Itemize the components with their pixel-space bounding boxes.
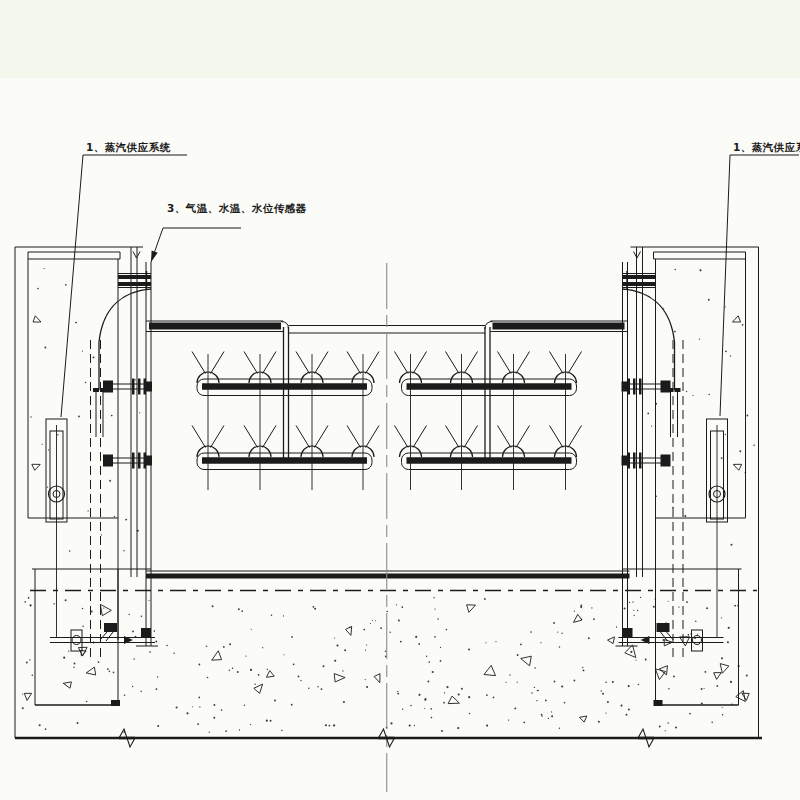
aggregate-dot — [564, 702, 566, 704]
pipe-tee — [146, 456, 152, 466]
aggregate-triangle — [680, 637, 690, 646]
aggregate-dot — [640, 597, 641, 598]
aggregate-dot — [523, 721, 525, 723]
aggregate-dot — [514, 707, 516, 709]
nozzle-spray-line — [296, 426, 310, 448]
aggregate-dot — [753, 444, 755, 446]
aggregate-dot — [250, 724, 251, 725]
aggregate-dot — [86, 701, 88, 703]
aggregate-dot — [26, 662, 28, 664]
aggregate-dot — [537, 690, 538, 691]
aggregate-dot — [432, 671, 434, 673]
aggregate-dot — [637, 610, 638, 611]
aggregate-dot — [624, 607, 626, 609]
aggregate-dot — [155, 688, 157, 690]
aggregate-dot — [722, 707, 723, 708]
aggregate-dot — [688, 634, 690, 636]
pipe-tee — [146, 382, 152, 392]
aggregate-triangle — [24, 693, 31, 700]
aggregate-dot — [133, 658, 135, 660]
aggregate-dot — [684, 515, 686, 517]
nozzle-spray-line — [366, 426, 380, 448]
aggregate-dot — [673, 675, 675, 677]
aggregate-dot — [574, 611, 575, 612]
aggregate-dot — [109, 480, 111, 482]
aggregate-dot — [517, 654, 519, 656]
page-margin-band — [0, 0, 800, 78]
callout-leader-line — [61, 155, 83, 417]
aggregate-dot — [668, 601, 669, 602]
manifold-elbow — [281, 322, 289, 330]
aggregate-dot — [591, 607, 592, 608]
aggregate-triangle — [659, 666, 667, 675]
aggregate-dot — [725, 434, 726, 435]
aggregate-dot — [534, 687, 535, 688]
leader-arrowhead-icon — [151, 251, 158, 262]
pipe-elbow — [104, 623, 117, 632]
aggregate-dot — [506, 682, 507, 683]
aggregate-dot — [446, 686, 448, 688]
aggregate-triangle — [574, 614, 582, 622]
aggregate-dot — [344, 649, 346, 651]
aggregate-dot — [486, 725, 488, 727]
aggregate-dot — [300, 680, 301, 681]
right-pier-and-gate-half — [387, 247, 759, 738]
aggregate-dot — [574, 680, 576, 682]
aggregate-dot — [325, 724, 327, 726]
aggregate-dot — [580, 605, 582, 607]
aggregate-triangle — [720, 664, 729, 674]
aggregate-dot — [414, 725, 415, 726]
callout-labels: 1、蒸汽供应系统 3、气温、水温、水位传感器 1、蒸汽供应系统 — [86, 141, 800, 214]
aggregate-dot — [283, 654, 284, 655]
aggregate-dot — [166, 645, 168, 647]
aggregate-dot — [206, 645, 208, 647]
aggregate-dot — [37, 288, 39, 290]
aggregate-dot — [493, 697, 495, 699]
aggregate-dot — [548, 718, 549, 719]
pipe-cap — [93, 388, 99, 392]
aggregate-dot — [431, 717, 433, 719]
aggregate-dot — [697, 633, 698, 634]
aggregate-dot — [53, 603, 55, 605]
aggregate-dot — [270, 720, 272, 722]
aggregate-dot — [232, 667, 234, 669]
aggregate-dot — [725, 350, 727, 352]
aggregate-dot — [692, 395, 693, 396]
aggregate-dot — [321, 688, 323, 690]
aggregate-dot — [385, 651, 386, 652]
aggregate-dot — [469, 713, 471, 715]
aggregate-dot — [605, 681, 607, 683]
aggregate-triangle — [86, 667, 96, 675]
aggregate-dot — [328, 725, 330, 727]
aggregate-dot — [721, 617, 722, 618]
aggregate-dot — [212, 605, 214, 607]
aggregate-dot — [75, 322, 77, 324]
aggregate-dot — [334, 637, 335, 638]
aggregate-dot — [82, 608, 84, 610]
aggregate-triangle — [32, 464, 40, 470]
aggregate-dot — [561, 633, 562, 634]
aggregate-dot — [365, 649, 366, 650]
aggregate-dot — [244, 704, 245, 705]
aggregate-dot — [39, 724, 41, 726]
aggregate-dot — [149, 651, 151, 653]
aggregate-triangle — [63, 682, 71, 688]
aggregate-dot — [728, 627, 730, 629]
aggregate-dot — [317, 686, 318, 687]
aggregate-dot — [616, 626, 617, 627]
header-pipe — [202, 383, 367, 390]
aggregate-dot — [397, 693, 399, 695]
pipe-flange — [132, 453, 135, 469]
aggregate-dot — [366, 644, 367, 645]
aggregate-dot — [87, 510, 88, 511]
nozzle-spray-line — [315, 426, 329, 448]
aggregate-dot — [389, 632, 391, 634]
aggregate-dot — [372, 620, 373, 621]
aggregate-dot — [271, 615, 273, 617]
aggregate-dot — [213, 717, 215, 719]
aggregate-dot — [44, 347, 46, 349]
aggregate-dot — [22, 694, 23, 695]
aggregate-triangle — [346, 626, 352, 635]
aggregate-dot — [509, 674, 510, 675]
aggregate-dot — [113, 671, 115, 673]
aggregate-dot — [363, 629, 365, 631]
aggregate-dot — [157, 676, 158, 677]
nozzle-spray-line — [315, 352, 329, 374]
aggregate-dot — [704, 671, 706, 673]
aggregate-dot — [458, 693, 460, 695]
aggregate-dot — [291, 636, 293, 638]
aggregate-dot — [29, 659, 30, 660]
aggregate-dot — [380, 627, 382, 629]
aggregate-triangle — [254, 684, 263, 693]
aggregate-dot — [65, 599, 67, 601]
aggregate-dot — [626, 714, 628, 716]
aggregate-dot — [22, 707, 24, 709]
aggregate-dot — [540, 642, 541, 643]
aggregate-dot — [541, 715, 543, 717]
aggregate-dot — [468, 649, 470, 651]
aggregate-triangle — [580, 716, 587, 722]
aggregate-dot — [607, 701, 609, 703]
aggregate-dot — [433, 597, 434, 598]
aggregate-dot — [593, 618, 595, 620]
aggregate-dot — [314, 608, 316, 610]
aggregate-dot — [199, 706, 200, 707]
aggregate-dot — [659, 726, 661, 728]
aggregate-dot — [123, 550, 124, 551]
aggregate-dot — [390, 722, 392, 724]
nozzle-spray-line — [347, 426, 361, 448]
aggregate-dot — [254, 684, 255, 685]
aggregate-dot — [686, 391, 687, 392]
aggregate-dot — [418, 643, 420, 645]
aggregate-dot — [30, 604, 32, 606]
pipe-flange — [132, 379, 135, 395]
aggregate-dot — [444, 692, 445, 693]
aggregate-dot — [397, 691, 398, 692]
nozzle-spray-line — [244, 352, 258, 374]
aggregate-dot — [601, 690, 602, 691]
aggregate-dot — [440, 660, 442, 662]
aggregate-dot — [554, 681, 556, 683]
aggregate-dot — [250, 669, 252, 671]
aggregate-dot — [141, 615, 143, 617]
drawing-geometry — [0, 0, 800, 792]
aggregate-dot — [711, 721, 713, 723]
aggregate-dot — [129, 614, 130, 615]
aggregate-dot — [103, 608, 104, 609]
aggregate-dot — [333, 724, 335, 726]
aggregate-triangle — [266, 671, 274, 678]
aggregate-dot — [155, 641, 157, 643]
aggregate-dot — [721, 657, 723, 659]
aggregate-dot — [739, 450, 741, 452]
aggregate-dot — [638, 684, 639, 685]
aggregate-dot — [221, 709, 223, 711]
aggregate-dot — [157, 725, 159, 727]
aggregate-dot — [630, 651, 632, 653]
aggregate-dot — [266, 720, 268, 722]
aggregate-dot — [154, 630, 156, 632]
aggregate-dot — [82, 626, 84, 628]
nozzle-spray-line — [263, 352, 277, 374]
aggregate-dot — [65, 284, 67, 286]
aggregate-dot — [342, 670, 343, 671]
nozzle-spray-line — [296, 352, 310, 374]
aggregate-dot — [132, 686, 133, 687]
aggregate-dot — [559, 646, 561, 648]
callout-label-steam-system-right: 1、蒸汽供应系统 — [733, 141, 800, 153]
aggregate-dot — [605, 712, 606, 713]
aggregate-dot — [76, 722, 78, 724]
aggregate-dot — [370, 623, 371, 624]
aggregate-dot — [93, 356, 95, 358]
aggregate-dot — [239, 729, 240, 730]
aggregate-dot — [192, 706, 193, 707]
aggregate-dot — [583, 669, 585, 671]
aggregate-dot — [197, 723, 199, 725]
aggregate-dot — [699, 338, 700, 339]
aggregate-dot — [440, 647, 441, 648]
aggregate-dot — [45, 728, 47, 730]
aggregate-dot — [334, 660, 336, 662]
nozzle-spray-line — [347, 352, 361, 374]
aggregate-dot — [531, 692, 532, 693]
aggregate-dot — [30, 416, 31, 417]
aggregate-dot — [124, 694, 126, 696]
aggregate-dot — [727, 641, 729, 643]
aggregate-dot — [225, 730, 227, 732]
aggregate-dot — [57, 434, 58, 435]
aggregate-dot — [441, 730, 443, 732]
aggregate-dot — [530, 631, 532, 633]
aggregate-dot — [410, 705, 412, 707]
aggregate-dot — [63, 657, 65, 659]
aggregate-dot — [602, 693, 604, 695]
aggregate-dot — [258, 674, 260, 676]
aggregate-dot — [484, 598, 486, 600]
aggregate-dot — [663, 308, 664, 309]
aggregate-dot — [557, 631, 558, 632]
aggregate-dot — [47, 486, 48, 487]
aggregate-dot — [706, 607, 708, 609]
aggregate-dot — [312, 606, 314, 608]
pipe-tee — [103, 381, 113, 393]
aggregate-dot — [343, 701, 345, 703]
aggregate-dot — [551, 711, 552, 712]
left-pier-and-gate-half — [15, 247, 387, 738]
aggregate-dot — [68, 651, 69, 652]
aggregate-dot — [237, 671, 239, 673]
aggregate-dot — [396, 604, 397, 605]
aggregate-dot — [722, 714, 724, 716]
aggregate-dot — [28, 597, 30, 599]
aggregate-dot — [199, 664, 201, 666]
aggregate-dot — [653, 606, 655, 608]
aggregate-triangle — [625, 645, 636, 658]
aggregate-dot — [434, 636, 436, 638]
aggregate-dot — [446, 629, 448, 631]
nozzle-spray-line — [192, 352, 206, 374]
aggregate-dot — [209, 732, 210, 733]
aggregate-dot — [267, 669, 268, 670]
aggregate-dot — [742, 324, 744, 326]
aggregate-dot — [98, 661, 100, 663]
aggregate-dot — [628, 709, 630, 711]
aggregate-dot — [426, 656, 427, 657]
aggregate-dot — [634, 615, 635, 616]
anchor-block — [111, 700, 120, 706]
aggregate-triangle — [521, 656, 532, 666]
callout-leader-line — [720, 155, 730, 416]
aggregate-dot — [85, 382, 86, 383]
aggregate-dot — [731, 544, 733, 546]
aggregate-dot — [415, 636, 417, 638]
aggregate-dot — [721, 457, 723, 459]
nozzle-spray-line — [244, 426, 258, 448]
aggregate-dot — [173, 652, 175, 654]
drawing-page: 1、蒸汽供应系统 3、气温、水温、水位传感器 1、蒸汽供应系统 — [0, 0, 800, 800]
aggregate-triangle — [714, 673, 722, 680]
aggregate-dot — [198, 697, 200, 699]
aggregate-dot — [48, 449, 49, 450]
aggregate-dot — [107, 668, 109, 670]
nozzle-spray-line — [263, 426, 277, 448]
aggregate-dot — [283, 615, 284, 616]
aggregate-dot — [74, 663, 76, 665]
aggregate-dot — [517, 682, 518, 683]
aggregate-dot — [430, 708, 432, 710]
aggregate-dot — [44, 268, 45, 269]
aggregate-dot — [545, 700, 547, 702]
aggregate-dot — [633, 610, 634, 611]
aggregate-dot — [746, 675, 748, 677]
aggregate-dot — [647, 413, 649, 415]
aggregate-triangle — [33, 316, 41, 322]
aggregate-dot — [704, 688, 705, 689]
aggregate-dot — [580, 606, 582, 608]
aggregate-dot — [468, 696, 470, 698]
aggregate-dot — [281, 730, 282, 731]
aggregate-dot — [42, 444, 43, 445]
aggregate-dot — [207, 677, 209, 679]
drawing-shape — [106, 632, 113, 641]
aggregate-dot — [553, 622, 555, 624]
steam-manifold — [149, 323, 281, 330]
pipe-elbow — [141, 628, 151, 637]
aggregate-dot — [598, 721, 600, 723]
aggregate-dot — [229, 669, 231, 671]
aggregate-dot — [109, 671, 111, 673]
aggregate-dot — [251, 629, 252, 630]
aggregate-dot — [699, 269, 701, 271]
aggregate-dot — [78, 415, 80, 417]
aggregate-dot — [678, 606, 679, 607]
aggregate-dot — [520, 644, 522, 646]
aggregate-dot — [31, 674, 33, 676]
gate-bottom-edge — [146, 574, 630, 579]
aggregate-dot — [398, 620, 400, 622]
aggregate-dot — [651, 425, 652, 426]
aggregate-dot — [386, 611, 388, 613]
aggregate-dot — [262, 647, 263, 648]
aggregate-dot — [114, 516, 115, 517]
aggregate-dot — [293, 663, 295, 665]
aggregate-dot — [148, 600, 149, 601]
valve-wheel-icon — [72, 636, 81, 645]
aggregate-dot — [365, 679, 366, 680]
pipe-flange — [138, 379, 141, 395]
engineering-drawing: 1、蒸汽供应系统 3、气温、水温、水位传感器 1、蒸汽供应系统 — [0, 0, 800, 800]
aggregate-dot — [674, 331, 676, 333]
aggregate-dot — [424, 708, 425, 709]
aggregate-dot — [645, 659, 647, 661]
aggregate-dot — [534, 667, 536, 669]
aggregate-dot — [291, 704, 293, 706]
aggregate-dot — [443, 702, 445, 704]
aggregate-dot — [628, 685, 630, 687]
aggregate-dot — [428, 661, 430, 663]
aggregate-dot — [588, 637, 590, 639]
aggregate-dot — [139, 412, 140, 413]
aggregate-dot — [559, 727, 560, 728]
aggregate-dot — [675, 727, 677, 729]
aggregate-dot — [434, 608, 435, 609]
aggregate-dot — [667, 722, 668, 723]
aggregate-dot — [375, 620, 376, 621]
aggregate-dot — [730, 355, 731, 356]
aggregate-dot — [186, 712, 188, 714]
aggregate-dot — [213, 704, 215, 706]
concrete-texture — [22, 268, 755, 733]
aggregate-dot — [734, 605, 736, 607]
aggregate-dot — [409, 725, 411, 727]
aggregate-dot — [632, 601, 633, 602]
callout-label-sensors: 3、气温、水温、水位传感器 — [167, 202, 307, 214]
aggregate-dot — [125, 519, 127, 521]
header-pipe — [202, 457, 367, 464]
aggregate-dot — [135, 379, 136, 380]
aggregate-dot — [402, 709, 403, 710]
aggregate-dot — [665, 730, 666, 731]
aggregate-dot — [461, 688, 463, 690]
nozzle-spray-line — [192, 426, 206, 448]
